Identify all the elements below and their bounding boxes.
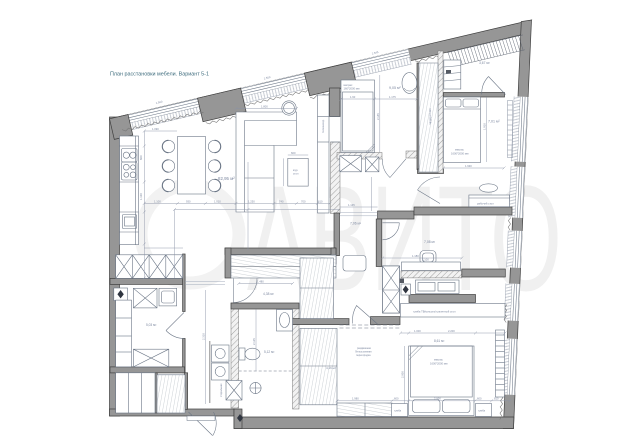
svg-text:600: 600 [477, 397, 482, 401]
svg-text:1.090: 1.090 [152, 127, 159, 131]
svg-text:7,08 м²: 7,08 м² [424, 240, 436, 244]
svg-text:стол: стол [293, 172, 299, 175]
svg-text:610: 610 [318, 199, 323, 203]
svg-text:600: 600 [394, 397, 399, 401]
svg-text:2.000: 2.000 [401, 371, 405, 378]
svg-text:1.100: 1.100 [139, 193, 143, 200]
svg-text:2.000: 2.000 [434, 397, 441, 401]
svg-text:4,16 м²: 4,16 м² [326, 366, 336, 370]
svg-text:1.180: 1.180 [412, 254, 419, 258]
svg-text:2.310: 2.310 [202, 333, 206, 340]
svg-text:740: 740 [279, 199, 284, 203]
svg-text:стиральная: стиральная [220, 383, 223, 397]
svg-text:700: 700 [301, 199, 306, 203]
svg-text:2.200: 2.200 [448, 329, 455, 333]
svg-text:матрас: матрас [455, 149, 465, 152]
svg-text:600: 600 [291, 151, 296, 155]
svg-text:тумба: тумба [394, 409, 402, 413]
svg-text:2.145: 2.145 [376, 113, 380, 120]
svg-text:1.250: 1.250 [248, 199, 255, 203]
svg-text:1.60: 1.60 [350, 95, 356, 99]
svg-text:82,95 м²: 82,95 м² [218, 176, 235, 181]
svg-text:перегородка: перегородка [356, 354, 371, 357]
svg-text:7,01 м²: 7,01 м² [488, 120, 500, 124]
svg-text:1.800: 1.800 [261, 104, 268, 108]
svg-text:телевизор: телевизор [321, 119, 325, 133]
svg-text:160*2000 мм: 160*2000 мм [344, 87, 360, 91]
svg-text:9,05 м²: 9,05 м² [389, 86, 401, 90]
svg-text:1.000: 1.000 [414, 329, 421, 333]
svg-text:1.480: 1.480 [257, 279, 264, 283]
svg-text:600: 600 [139, 155, 143, 160]
svg-text:930: 930 [186, 199, 191, 203]
svg-text:1.145: 1.145 [348, 203, 355, 207]
svg-text:матрас: матрас [344, 84, 354, 87]
svg-text:матрас: матрас [434, 359, 444, 362]
svg-text:тумба ТВ/консоль/туалетный сто: тумба ТВ/консоль/туалетный стол [413, 310, 456, 314]
svg-text:1.010: 1.010 [214, 199, 221, 203]
svg-text:3,67 м²: 3,67 м² [479, 61, 491, 65]
svg-text:1.980: 1.980 [352, 397, 359, 401]
svg-text:8,61 м²: 8,61 м² [434, 339, 444, 343]
svg-text:гардеробная: гардеробная [428, 108, 432, 125]
svg-text:1600*2000 мм: 1600*2000 мм [430, 361, 448, 365]
svg-text:1.930: 1.930 [465, 164, 472, 168]
svg-text:2.125: 2.125 [252, 338, 256, 345]
svg-text:2.100: 2.100 [422, 258, 429, 262]
svg-text:810: 810 [494, 397, 499, 401]
svg-text:5,03 м²: 5,03 м² [146, 323, 156, 327]
svg-text:4,38 м²: 4,38 м² [263, 292, 275, 296]
svg-text:1.175: 1.175 [389, 95, 396, 99]
svg-text:1.910: 1.910 [483, 123, 487, 130]
svg-text:рабочий стол: рабочий стол [477, 202, 494, 206]
svg-text:План расстановки мебели. Вариа: План расстановки мебели. Вариант 5-1 [110, 72, 209, 78]
svg-text:7,06 м²: 7,06 м² [350, 222, 362, 226]
svg-text:1600*2000 мм: 1600*2000 мм [451, 151, 469, 155]
svg-text:тумба: тумба [478, 409, 486, 413]
svg-text:1.100: 1.100 [154, 199, 161, 203]
svg-text:5,12 м²: 5,12 м² [264, 350, 274, 354]
